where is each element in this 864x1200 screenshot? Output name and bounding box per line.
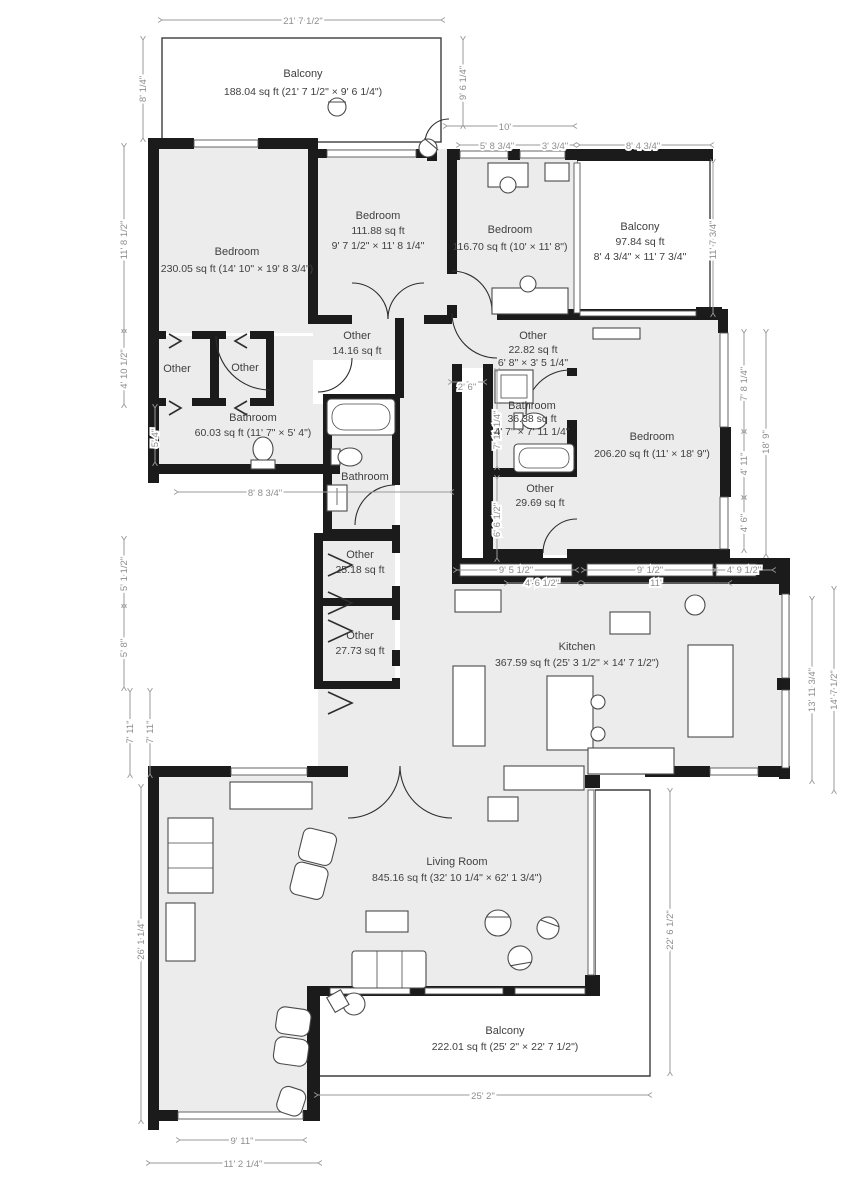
- dim-label: 11': [650, 578, 662, 589]
- bathtub-icon: [327, 399, 395, 435]
- dim-label: 7' 8 1/4": [739, 367, 750, 401]
- room-name: Other: [346, 630, 374, 642]
- floorplan-page: 21' 7 1/2" 8' 1/4" 9' 6 1/4" 10' 5' 8 3/…: [0, 0, 864, 1200]
- room-size: 8' 4 3/4" × 11' 7 3/4": [594, 251, 687, 263]
- side-table: [488, 797, 518, 821]
- kitchen-counter-top: [455, 590, 501, 612]
- room-name: Bathroom: [229, 412, 277, 424]
- dim-label: 9' 1/2": [637, 565, 663, 576]
- room-name: Other: [163, 363, 191, 375]
- dim-label: 13' 11 3/4": [807, 668, 818, 712]
- floorplan-drawing: 21' 7 1/2" 8' 1/4" 9' 6 1/4" 10' 5' 8 3/…: [0, 0, 864, 1200]
- dresser: [593, 328, 640, 339]
- toilet-icon: [251, 437, 275, 469]
- balcony-chair-icon: [328, 98, 346, 116]
- room-name: Bedroom: [488, 224, 533, 236]
- dim-label: 21' 7 1/2": [283, 16, 323, 27]
- dim-label: 14' 7 1/2": [829, 670, 840, 710]
- dim-label: 25' 2": [471, 1091, 495, 1102]
- room-name: Other: [231, 362, 259, 374]
- dim-label: 10': [499, 122, 512, 133]
- dim-label: 5' 8": [119, 639, 130, 657]
- dim-label: 6' 6 1/2": [492, 503, 503, 537]
- dim-label: 7' 11": [145, 721, 156, 744]
- room-size: 9' 7 1/2" × 11' 8 1/4": [332, 240, 425, 252]
- kitchen-table: [610, 612, 650, 634]
- dim-label: 2' 6": [458, 382, 476, 393]
- dim-label: 26' 1 1/4": [136, 920, 147, 960]
- room-name: Kitchen: [559, 641, 596, 653]
- dim-label: 8' 4 3/4": [626, 141, 660, 152]
- dim-label: 4' 6": [739, 514, 750, 532]
- room-name: Living Room: [426, 856, 487, 868]
- dim-label: 11' 7 3/4": [708, 221, 719, 260]
- sofa: [352, 951, 426, 988]
- room-name: Bedroom: [356, 210, 401, 222]
- dim-label: 9' 6 1/4": [458, 66, 469, 100]
- room-area: 367.59 sq ft (25' 3 1/2" × 14' 7 1/2"): [495, 657, 659, 669]
- kitchen-counter: [688, 645, 733, 737]
- shower-icon: [495, 370, 533, 403]
- dim-label: 9' 11": [231, 1136, 254, 1147]
- armchair-icon: [485, 910, 511, 936]
- room-area: 22.82 sq ft: [508, 344, 557, 356]
- room-area: 845.16 sq ft (32' 10 1/4" × 62' 1 3/4"): [372, 872, 542, 884]
- room-area: 111.88 sq ft: [351, 225, 404, 237]
- room-area: 25.18 sq ft: [335, 564, 384, 576]
- dim-label: 11' 2 1/4": [224, 1159, 263, 1170]
- room-name: Other: [519, 330, 547, 342]
- dim-label: 4' 6 1/2": [525, 578, 559, 589]
- room-name: Balcony: [620, 221, 660, 233]
- dim-label: 9' 5 1/2": [499, 565, 533, 576]
- room-area: 14.16 sq ft: [332, 345, 381, 357]
- room-area: 188.04 sq ft (21' 7 1/2" × 9' 6 1/4"): [224, 86, 382, 98]
- room-name: Other: [526, 483, 554, 495]
- room-name: Other: [343, 330, 371, 342]
- room-name: Bathroom: [508, 400, 556, 412]
- dim-label: 18' 9": [761, 430, 772, 454]
- room-size: 4' 7" × 7' 11 1/4": [494, 426, 569, 438]
- kitchen-chair: [685, 595, 705, 615]
- room-name: Bedroom: [215, 246, 260, 258]
- bookshelf: [168, 818, 213, 893]
- dim-label: 4' 9 1/2": [727, 565, 761, 576]
- bathtub-icon: [514, 444, 574, 472]
- dim-label: 4' 10 1/2": [119, 349, 130, 389]
- dim-label: 5' 1 1/2": [119, 557, 130, 591]
- room-area: 97.84 sq ft: [615, 236, 664, 248]
- fridge: [453, 666, 485, 746]
- coffee-table: [366, 911, 408, 932]
- sideboard: [504, 766, 584, 790]
- room-name: Balcony: [485, 1025, 525, 1037]
- dim-label: 5' 4": [150, 429, 161, 447]
- dim-label: 4' 11": [739, 453, 750, 476]
- room-name: Other: [346, 549, 374, 561]
- dim-label: 3' 3/4": [542, 141, 568, 152]
- dim-label: 8' 8 3/4": [248, 488, 282, 499]
- sink-icon: [327, 485, 347, 511]
- room-name: Balcony: [283, 68, 323, 80]
- kitchen-appliances: [588, 748, 674, 774]
- room-size: 6' 8" × 3' 5 1/4": [498, 357, 568, 369]
- room-name: Bathroom: [341, 471, 389, 483]
- room-area: 116.70 sq ft (10' × 11' 8"): [452, 241, 567, 253]
- room-name: Bedroom: [630, 431, 675, 443]
- dim-label: 8' 1/4": [138, 76, 149, 102]
- room-area: 60.03 sq ft (11' 7" × 5' 4"): [195, 427, 312, 439]
- dim-label: 7' 11": [125, 721, 136, 744]
- room-area: 222.01 sq ft (25' 2" × 22' 7 1/2"): [432, 1041, 579, 1053]
- tv-console: [230, 782, 312, 809]
- room-area: 29.69 sq ft: [515, 497, 564, 509]
- dim-label: 22' 6 1/2": [665, 910, 676, 950]
- toilet-icon: [331, 448, 362, 466]
- room-area: 36.38 sq ft: [507, 413, 556, 425]
- room-area: 27.73 sq ft: [335, 645, 384, 657]
- room-area: 230.05 sq ft (14' 10" × 19' 8 3/4"): [161, 263, 313, 275]
- dim-label: 11' 8 1/2": [119, 221, 130, 260]
- cabinet: [166, 903, 195, 961]
- dim-label: 5' 8 3/4": [480, 141, 514, 152]
- room-area: 206.20 sq ft (11' × 18' 9"): [594, 448, 710, 460]
